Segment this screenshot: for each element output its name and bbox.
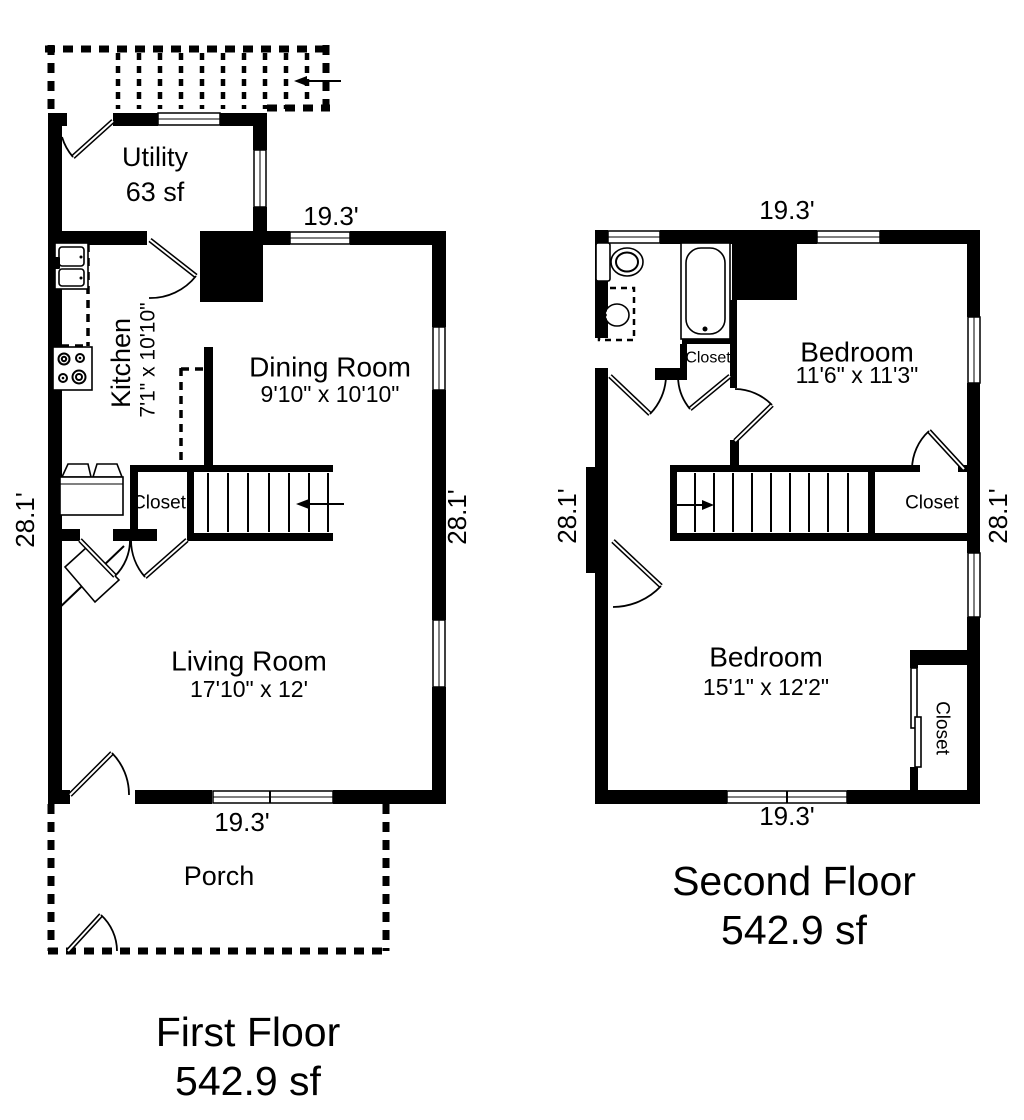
floor-plan-page: Utility 63 sf Kitchen 7'1" x 10'10" Dini… xyxy=(0,0,1024,1120)
bedroom2-size-label: 15'1" x 12'2" xyxy=(703,674,829,700)
stairs-down-arrow-icon xyxy=(296,499,344,509)
second-floor-area: 542.9 sf xyxy=(721,907,867,953)
bathtub xyxy=(681,243,730,339)
toilet xyxy=(596,243,643,281)
sf-dim-left: 28.1' xyxy=(552,488,582,544)
deck-outline xyxy=(45,45,341,112)
ff-dim-top: 19.3' xyxy=(303,201,359,231)
bedroom1-door xyxy=(735,389,772,441)
hall-closet-door xyxy=(678,376,730,409)
utility-area-label: 63 sf xyxy=(126,177,185,207)
utility-label: Utility xyxy=(122,142,188,172)
floor-plan-canvas: Utility 63 sf Kitchen 7'1" x 10'10" Dini… xyxy=(0,0,1024,1120)
first-floor-stairs xyxy=(208,473,344,532)
first-floor-plan: Utility 63 sf Kitchen 7'1" x 10'10" Dini… xyxy=(10,45,472,1104)
ff-dim-right: 28.1' xyxy=(442,489,472,545)
utility-exterior-door xyxy=(62,121,113,157)
ff-dim-left: 28.1' xyxy=(10,492,40,548)
living-room-label: Living Room xyxy=(171,646,327,677)
porch-door xyxy=(68,915,117,951)
bedroom-closet-label: Closet xyxy=(932,701,953,756)
stair-closet-label: Closet xyxy=(905,493,960,514)
porch-label: Porch xyxy=(184,861,255,891)
deck-stair-treads xyxy=(118,53,307,109)
kitchen-sink xyxy=(54,243,88,289)
front-door xyxy=(70,753,129,795)
second-floor-windows xyxy=(596,231,980,803)
bedroom-closet-slider xyxy=(911,668,921,767)
second-floor-plan: Bedroom 11'6" x 11'3" Closet Closet Bedr… xyxy=(552,195,1013,953)
kitchen-counter-cabinet xyxy=(60,464,123,515)
second-floor-title: Second Floor xyxy=(672,858,916,904)
bedroom2-label: Bedroom xyxy=(709,642,823,673)
dining-room-size-label: 9'10" x 10'10" xyxy=(261,381,400,407)
ff-dim-bottom: 19.3' xyxy=(214,807,270,837)
corner-cabinet xyxy=(56,546,124,611)
living-room-size-label: 17'10" x 12' xyxy=(190,676,308,702)
closet-label-first-floor: Closet xyxy=(132,493,187,514)
stair-closet-door xyxy=(912,431,964,469)
sf-dim-right: 28.1' xyxy=(983,488,1013,544)
second-floor-stairs xyxy=(674,473,848,532)
sf-dim-top: 19.3' xyxy=(759,195,815,225)
closet-door-first-floor xyxy=(131,540,187,577)
bedroom2-door xyxy=(613,541,661,607)
bedroom1-size-label: 11'6" x 11'3" xyxy=(796,362,919,388)
kitchen-size-label: 7'1" x 10'10" xyxy=(137,302,160,417)
bath-closet-label: Closet xyxy=(685,350,731,367)
stove xyxy=(53,347,92,390)
utility-kitchen-door xyxy=(149,240,196,298)
first-floor-area: 542.9 sf xyxy=(175,1058,321,1104)
kitchen-label: Kitchen xyxy=(106,318,136,408)
dining-room-label: Dining Room xyxy=(249,352,411,383)
bathroom-door xyxy=(610,376,666,414)
deck-direction-arrow-icon xyxy=(294,76,341,86)
sf-dim-bottom: 19.3' xyxy=(759,801,815,831)
first-floor-title: First Floor xyxy=(156,1009,341,1055)
